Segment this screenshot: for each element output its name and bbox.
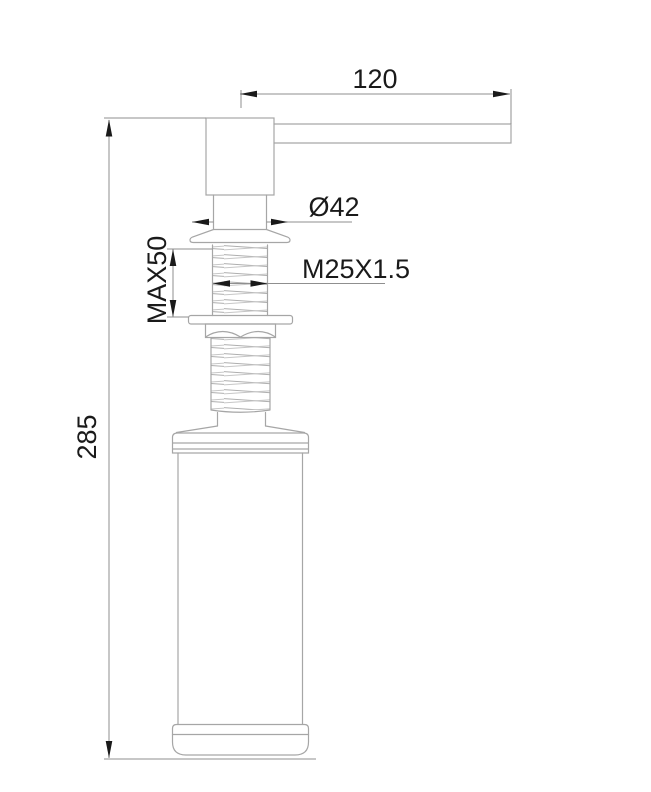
spout-tube <box>274 124 511 143</box>
dimension-lines <box>104 89 511 759</box>
label-spout-reach: 120 <box>352 64 397 94</box>
arrowhead-120-right <box>493 91 510 98</box>
upper-thread-fill <box>213 245 268 316</box>
lower-thread-fill <box>211 338 270 410</box>
technical-drawing: 120 Ø42 M25X1.5 MAX50 285 <box>0 0 651 792</box>
stem <box>214 195 267 230</box>
bottle-rim <box>173 433 309 453</box>
label-flange-diameter: Ø42 <box>308 192 359 222</box>
bottle-base-cup <box>173 735 309 756</box>
label-max-mounting: MAX50 <box>142 236 172 325</box>
label-thread-spec: M25X1.5 <box>302 254 410 284</box>
washer <box>189 316 293 325</box>
dimension-arrows <box>106 91 510 758</box>
bottle-body <box>178 453 303 724</box>
bottle-base-ring <box>173 725 309 735</box>
arrowhead-d42-right <box>271 219 288 226</box>
pump-head <box>206 118 274 195</box>
arrowhead-285-down <box>106 741 113 758</box>
arrowhead-285-up <box>106 120 113 137</box>
drawing-canvas: 120 Ø42 M25X1.5 MAX50 285 <box>0 0 651 792</box>
arrowhead-120-left <box>240 91 257 98</box>
bottle-neck <box>218 413 266 427</box>
mounting-nut <box>206 324 276 338</box>
arrowhead-d42-left <box>192 219 209 226</box>
dim-spout-reach-lines <box>240 89 511 124</box>
flange <box>190 230 290 243</box>
label-total-height: 285 <box>72 414 102 459</box>
nut-chamfer <box>206 332 276 338</box>
dim-total-height-lines <box>104 118 316 759</box>
bottle-shoulder <box>177 426 305 433</box>
